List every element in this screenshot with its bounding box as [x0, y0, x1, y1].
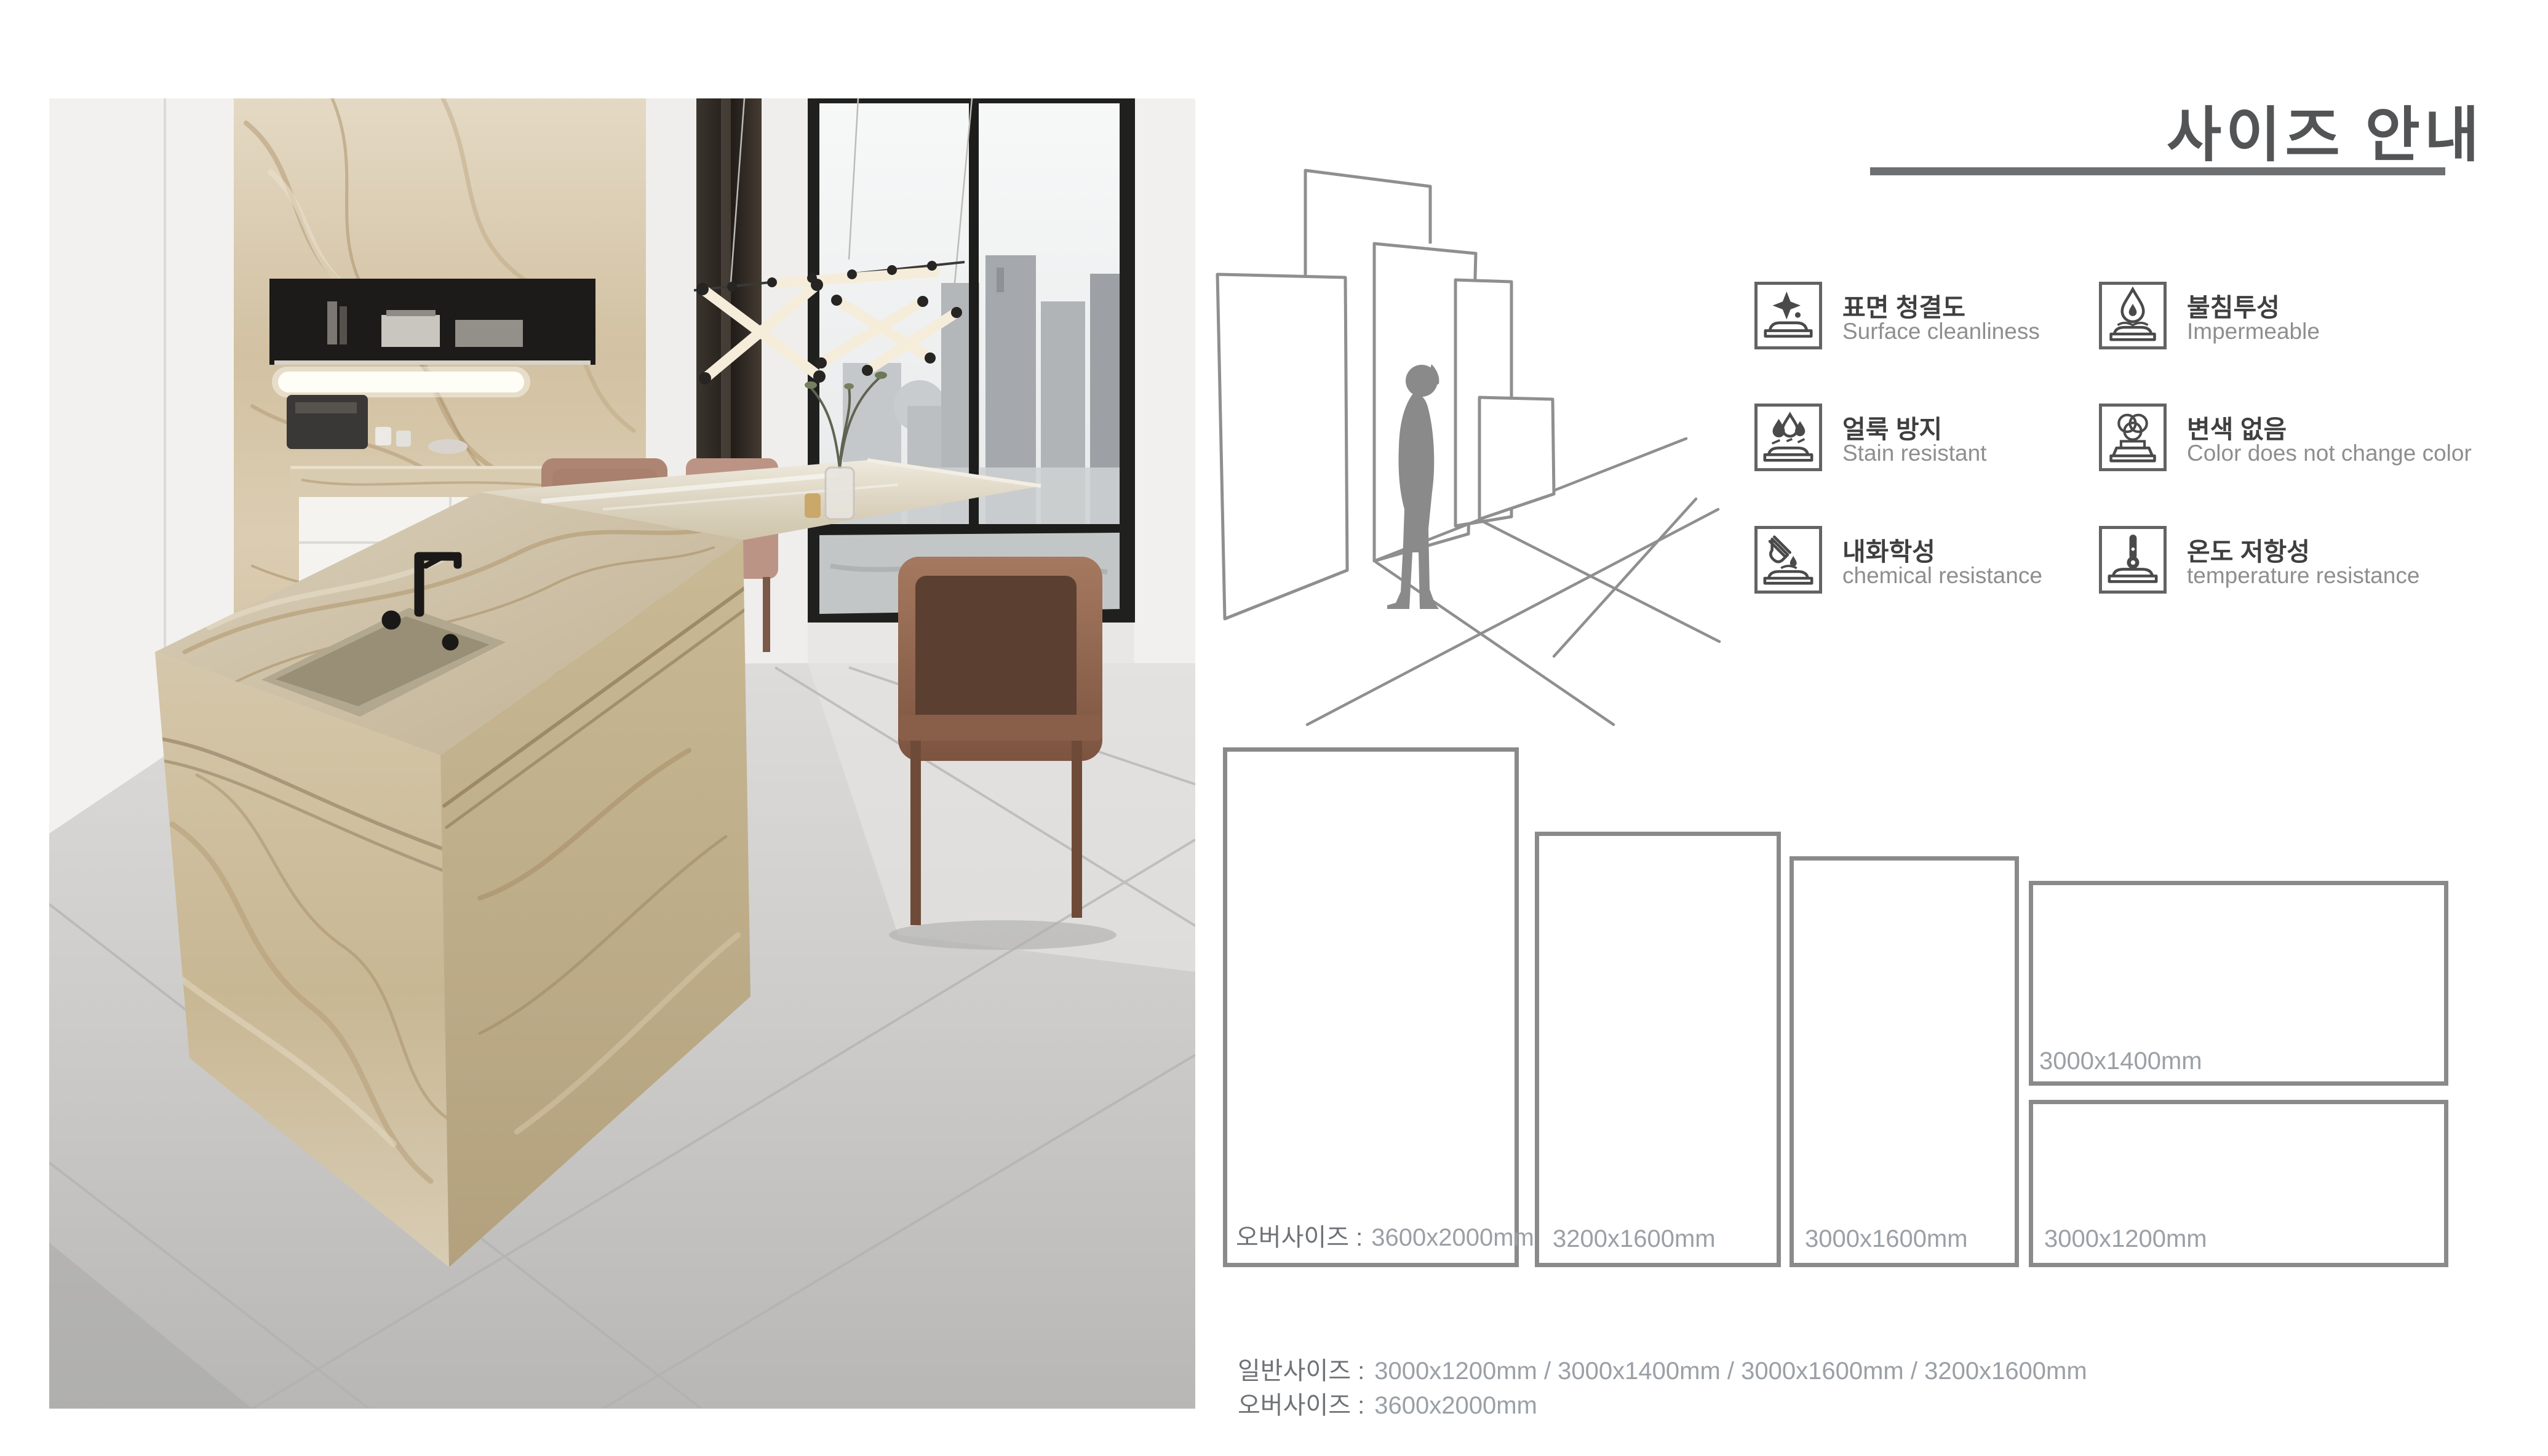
size-panel-3600x2000: 오버사이즈 :3600x2000mm [1223, 747, 1519, 1267]
size-panel-3000x1400: 3000x1400mm [2029, 881, 2448, 1086]
summary-prefix: 오버사이즈 : [1238, 1392, 1364, 1419]
feature-icon-box [1754, 526, 1822, 594]
feature-icon-box [1754, 404, 1822, 471]
stain-drops-icon [1758, 407, 1819, 468]
feature-icon-box [2099, 526, 2167, 594]
page-title: 사이즈 안내 [2167, 86, 2483, 173]
slab-size-diagram [1215, 148, 1722, 729]
feature-label-ko: 내화학성 [1842, 531, 1935, 568]
kitchen-photo [49, 98, 1195, 1409]
summary-standard-sizes: 일반사이즈 :3000x1200mm / 3000x1400mm / 3000x… [1238, 1351, 2087, 1386]
size-panel-3200x1600: 3200x1600mm [1535, 832, 1781, 1267]
size-value: 3000x1200mm [2044, 1225, 2207, 1253]
thermometer-icon [2102, 529, 2164, 591]
size-value: 3200x1600mm [1553, 1225, 1716, 1253]
size-value: 3000x1600mm [1805, 1225, 1968, 1253]
feature-icon-box [2099, 404, 2167, 471]
feature-label-en: Surface cleanliness [1842, 319, 2040, 344]
feature-label-en: temperature resistance [2187, 563, 2419, 589]
sparkle-clean-icon [1758, 285, 1819, 346]
feature-icon-box [2099, 282, 2167, 349]
color-circles-icon [2102, 407, 2164, 468]
feature-label-en: Impermeable [2187, 319, 2320, 344]
summary-value: 3600x2000mm [1374, 1392, 1537, 1419]
feature-label-ko: 불침투성 [2187, 287, 2280, 324]
title-underline [1870, 167, 2445, 175]
kitchen-photo-illustration [49, 98, 1195, 1409]
summary-prefix: 일반사이즈 : [1238, 1358, 1364, 1385]
feature-label-ko: 얼룩 방지 [1842, 408, 1942, 445]
summary-value: 3000x1200mm / 3000x1400mm / 3000x1600mm … [1374, 1358, 2087, 1385]
feature-label-en: Color does not change color [2187, 440, 2472, 466]
size-panel-3000x1200: 3000x1200mm [2029, 1100, 2448, 1267]
size-panel-3000x1600: 3000x1600mm [1790, 856, 2019, 1267]
size-value: 3000x1400mm [2039, 1048, 2202, 1075]
feature-icon-box [1754, 282, 1822, 349]
chemical-tube-icon [1758, 529, 1819, 591]
page: 사이즈 안내 [0, 0, 2548, 1456]
feature-label-ko: 온도 저항성 [2187, 531, 2310, 568]
water-drop-icon [2102, 285, 2164, 346]
feature-label-ko: 변색 없음 [2187, 408, 2287, 445]
feature-label-en: chemical resistance [1842, 563, 2042, 589]
size-value: 3600x2000mm [1371, 1224, 1534, 1251]
feature-label-en: Stain resistant [1842, 440, 1986, 466]
summary-oversize: 오버사이즈 :3600x2000mm [1238, 1385, 1537, 1421]
feature-label-ko: 표면 청결도 [1842, 287, 1965, 324]
size-prefix: 오버사이즈 : [1236, 1224, 1363, 1251]
